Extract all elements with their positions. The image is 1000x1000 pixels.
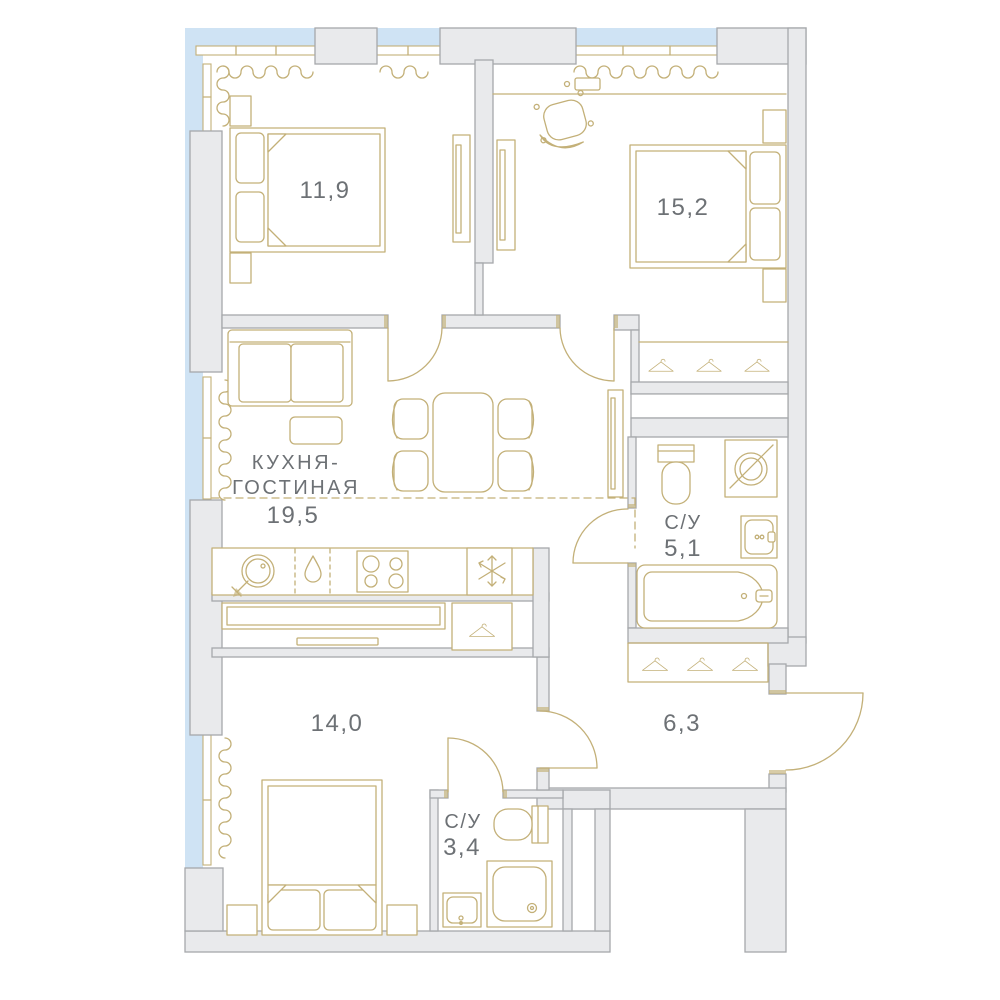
nightstand-icon xyxy=(230,96,251,126)
floor-plan-canvas: 11,9 15,2 КУХНЯ- ГОСТИНАЯ 19,5 С/У 5,1 1… xyxy=(0,0,1000,1000)
hanger-icon xyxy=(649,359,673,371)
bathroom-2-name-label: С/У xyxy=(444,811,481,833)
chair-icon xyxy=(498,451,532,491)
shelf-niche xyxy=(631,394,788,418)
room-labels: 11,9 15,2 КУХНЯ- ГОСТИНАЯ 19,5 С/У 5,1 1… xyxy=(232,177,709,861)
bedroom-2-door xyxy=(560,328,614,381)
hanger-icon xyxy=(745,359,769,371)
bathroom-1-name-label: С/У xyxy=(664,512,701,534)
bathtub-icon xyxy=(637,565,777,628)
bathroom-2-door xyxy=(448,738,503,792)
kitchen-living-name-line2: ГОСТИНАЯ xyxy=(232,477,360,499)
pillow-icon xyxy=(236,133,264,183)
bedroom-3-door xyxy=(540,711,597,768)
nightstand-icon xyxy=(763,269,786,302)
toilet-icon xyxy=(494,806,548,843)
fridge-icon xyxy=(467,548,512,595)
nightstand-icon xyxy=(387,905,417,935)
bedroom-2-area-label: 15,2 xyxy=(657,194,710,221)
hanger-icon xyxy=(697,359,721,371)
bathroom-1 xyxy=(637,440,777,628)
pillow-icon xyxy=(750,208,780,260)
pillow-icon xyxy=(236,192,264,242)
hanger-icon xyxy=(687,658,712,670)
corridor xyxy=(608,390,623,497)
bathroom-sink-icon xyxy=(443,893,481,927)
bathroom-1-door xyxy=(573,509,628,563)
hallway-area-label: 6,3 xyxy=(663,710,701,737)
chair-icon xyxy=(394,451,428,491)
chair-icon xyxy=(394,399,428,439)
pillow-icon xyxy=(750,152,780,204)
monitor-icon xyxy=(575,78,600,90)
hallway-closet xyxy=(628,643,768,682)
kitchen-living-name-line1: КУХНЯ- xyxy=(252,452,340,474)
kitchen-living-area-label: 19,5 xyxy=(267,502,320,529)
dining-table-icon xyxy=(433,393,493,492)
washing-machine-icon xyxy=(725,440,777,497)
nightstand-icon xyxy=(230,253,251,283)
toilet-icon xyxy=(658,445,694,462)
tv-icon xyxy=(297,638,378,645)
shower-icon xyxy=(487,861,552,927)
nightstand-icon xyxy=(763,110,786,143)
nightstand-icon xyxy=(227,905,257,935)
hanger-icon xyxy=(732,658,757,670)
floor-plan: 11,9 15,2 КУХНЯ- ГОСТИНАЯ 19,5 С/У 5,1 1… xyxy=(0,0,1000,1000)
bedroom-3-area-label: 14,0 xyxy=(311,710,364,737)
hanger-icon xyxy=(642,658,667,670)
bedroom-1-area-label: 11,9 xyxy=(300,177,351,204)
bathroom-2-area-label: 3,4 xyxy=(443,834,481,861)
bedroom-1-door xyxy=(388,328,442,381)
closet-hangers xyxy=(649,359,769,371)
bathroom-sink-icon xyxy=(741,516,777,558)
desk-chair-icon xyxy=(531,89,598,154)
bathroom-1-area-label: 5,1 xyxy=(664,535,702,562)
hob-icon xyxy=(357,551,408,592)
coffee-table-icon xyxy=(290,417,342,444)
entry-door xyxy=(786,693,863,770)
bedroom-3 xyxy=(227,780,417,935)
chair-icon xyxy=(498,399,532,439)
